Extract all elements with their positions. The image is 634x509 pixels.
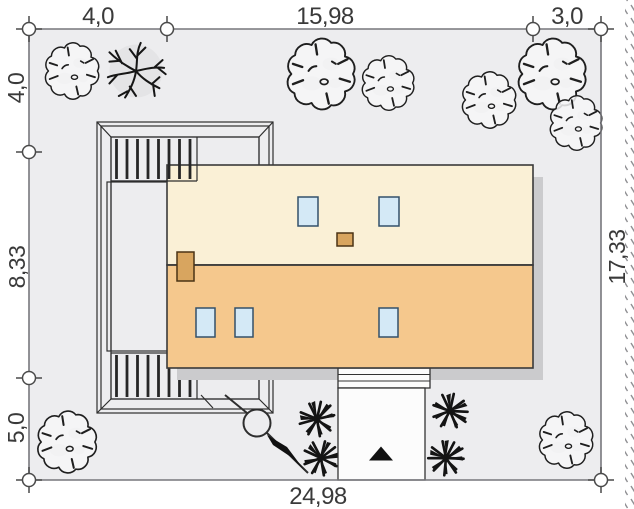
survey-point (161, 23, 174, 36)
tree-icon (539, 412, 592, 468)
tree-icon (362, 56, 414, 111)
survey-point (23, 372, 36, 385)
survey-point (595, 474, 608, 487)
tree-icon (550, 96, 602, 151)
roof-lower-slope (167, 265, 533, 368)
dim-left-middle: 8,33 (4, 246, 30, 289)
tree-icon (45, 43, 98, 99)
tree-icon (288, 39, 355, 110)
skylight-window (379, 197, 399, 226)
survey-point (595, 23, 608, 36)
tree-icon (38, 411, 96, 473)
dim-top-center: 15,98 (296, 3, 354, 30)
skylight-window (379, 308, 398, 337)
dim-left-bottom: 5,0 (3, 413, 29, 443)
dim-bottom: 24,98 (289, 483, 347, 509)
site-plan-svg: 4,0 15,98 3,0 4,0 8,33 5,0 17,33 24,98 (0, 0, 634, 509)
survey-point (23, 146, 36, 159)
chimney-small (337, 233, 353, 246)
dim-left-top: 4,0 (3, 73, 29, 103)
house-roof (167, 165, 533, 368)
driveway-surface (338, 388, 425, 480)
pergola-band-top (111, 137, 197, 181)
survey-point (23, 474, 36, 487)
entrance-steps (338, 368, 430, 388)
dim-top-right: 3,0 (551, 3, 583, 30)
skylight-window (298, 197, 318, 226)
tree-icon (462, 72, 515, 128)
chimney (177, 252, 194, 281)
roof-upper-slope (167, 165, 533, 265)
driveway (338, 368, 430, 480)
site-plan-canvas: 4,0 15,98 3,0 4,0 8,33 5,0 17,33 24,98 (0, 0, 634, 509)
skylight-window (196, 308, 215, 337)
dim-right: 17,33 (604, 229, 630, 284)
survey-point (527, 23, 540, 36)
skylight-window (235, 308, 253, 337)
survey-point (23, 23, 36, 36)
dim-top-left: 4,0 (82, 3, 114, 30)
